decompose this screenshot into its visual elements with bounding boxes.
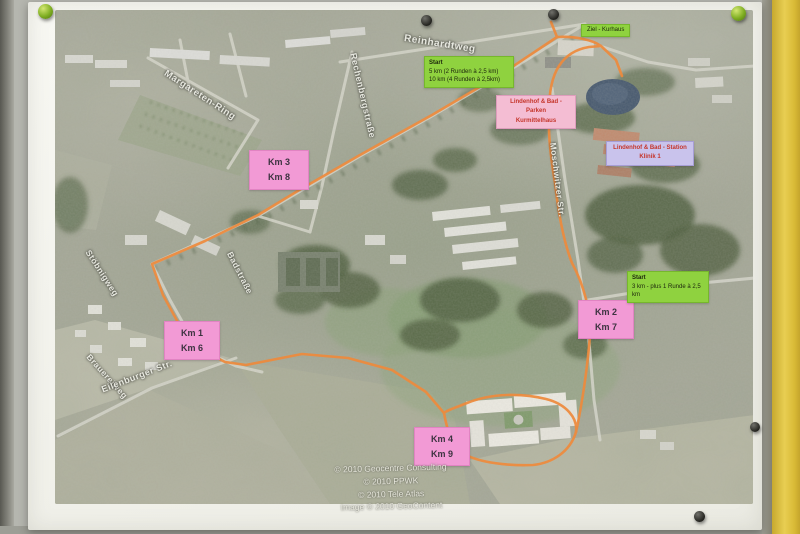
black-pin-icon xyxy=(548,9,559,20)
start-box-main: Start 5 km (2 Runden à 2,5 km) 10 km (4 … xyxy=(424,56,514,88)
start-box-secondary: Start 3 km - plus 1 Runde à 2,5 km xyxy=(627,271,709,303)
black-pin-icon xyxy=(421,15,432,26)
km-marker-1-6: Km 1 Km 6 xyxy=(164,321,220,360)
info-box-parken: Lindenhof & Bad - Parken Kurmittelhaus xyxy=(496,95,576,129)
green-pin-icon xyxy=(38,4,53,19)
start-box-title: Start xyxy=(429,59,509,68)
start-box-line: 5 km (2 Runden à 2,5 km) xyxy=(429,68,509,77)
photo-of-course-map: Km 3 Km 8 Km 1 Km 6 Km 2 Km 7 Km 4 Km 9 … xyxy=(0,0,800,534)
info-box-station: Lindenhof & Bad - Station Klinik 1 xyxy=(606,141,694,166)
km-marker-line: Km 7 xyxy=(595,320,617,335)
km-marker-3-8: Km 3 Km 8 xyxy=(249,150,309,190)
start-box-line: 10 km (4 Runden à 2,5km) xyxy=(429,76,509,85)
start-box-title: Start xyxy=(632,274,704,283)
start-box-line: 3 km - plus 1 Runde à 2,5 km xyxy=(632,283,704,300)
km-marker-2-7: Km 2 Km 7 xyxy=(578,300,634,339)
km-marker-line: Km 3 xyxy=(268,155,290,170)
km-marker-line: Km 4 xyxy=(431,432,453,447)
info-box-line: Klinik 1 xyxy=(610,153,690,162)
black-pin-icon xyxy=(694,511,705,522)
info-box-line: Lindenhof & Bad - Station xyxy=(610,144,690,153)
info-box-line: Lindenhof & Bad - Parken xyxy=(500,98,572,117)
km-marker-line: Km 1 xyxy=(181,326,203,341)
finish-box: Ziel - Kurhaus xyxy=(581,24,630,37)
green-pin-icon xyxy=(731,6,746,21)
km-marker-line: Km 2 xyxy=(595,305,617,320)
km-marker-line: Km 9 xyxy=(431,447,453,462)
km-marker-line: Km 6 xyxy=(181,341,203,356)
finish-box-label: Ziel - Kurhaus xyxy=(587,27,624,33)
info-box-line: Kurmittelhaus xyxy=(500,117,572,126)
copyright-notice: © 2010 Geocentre Consulting © 2010 PPWK … xyxy=(315,460,466,515)
km-marker-line: Km 8 xyxy=(268,170,290,185)
satellite-rendering xyxy=(0,0,800,534)
black-pin-icon xyxy=(750,422,760,432)
